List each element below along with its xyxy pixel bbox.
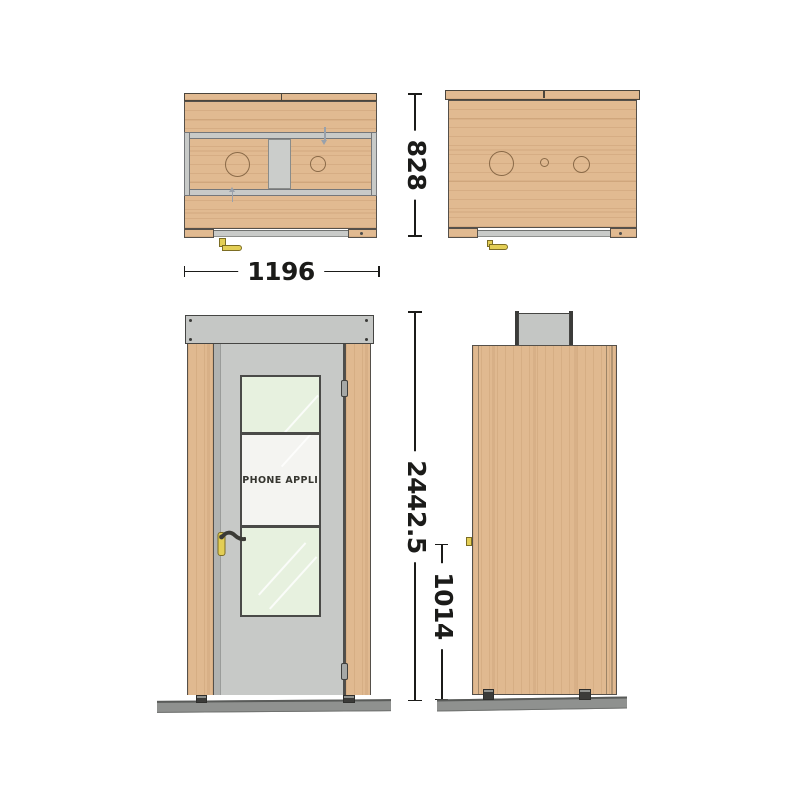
crank-bar bbox=[222, 245, 242, 251]
roof-top-beam bbox=[445, 90, 640, 100]
roof-strip-wood-right bbox=[610, 228, 637, 238]
side-panel-seam bbox=[478, 346, 479, 694]
dim-width-tick-left bbox=[184, 266, 186, 277]
ventilation-hole-small bbox=[310, 156, 326, 172]
roof-strip-latch-dot bbox=[619, 232, 622, 235]
roof-hole-medium bbox=[573, 156, 590, 173]
ventilation-hole-large bbox=[225, 152, 250, 177]
screw-icon bbox=[189, 319, 192, 322]
screw-icon bbox=[365, 319, 368, 322]
technical-drawing-canvas: 828 1196 bbox=[0, 0, 800, 800]
roof-crank-handle bbox=[487, 240, 511, 250]
vent-cap-box bbox=[518, 313, 570, 347]
dim-width-label: 1196 bbox=[238, 258, 324, 284]
roof-hole-tiny bbox=[540, 158, 549, 167]
glass-reflection bbox=[281, 435, 312, 467]
frame-rail-bottom bbox=[184, 189, 377, 196]
dim-height-tick-bottom bbox=[408, 700, 422, 702]
glass-reflection bbox=[258, 542, 306, 595]
frame-end-right bbox=[371, 132, 377, 196]
plan-frame-band bbox=[184, 132, 377, 196]
roof-cap-panel bbox=[185, 315, 374, 344]
hinge-top bbox=[341, 380, 349, 397]
door-brand-label: PHONE APPLI bbox=[242, 475, 318, 486]
screw-icon bbox=[365, 338, 368, 341]
strip-door-recess bbox=[214, 230, 348, 237]
dim-height-tick-top bbox=[408, 311, 422, 313]
frame-rail-top bbox=[184, 132, 377, 139]
dim-depth-label: 828 bbox=[402, 131, 428, 200]
strip-latch-dot bbox=[360, 232, 363, 235]
adjustable-foot bbox=[483, 689, 494, 700]
clip-pin-bottom bbox=[232, 191, 234, 202]
door-handle bbox=[217, 528, 246, 561]
dim-width-tick-right bbox=[378, 266, 380, 277]
adjustable-foot bbox=[579, 689, 592, 700]
handle-tip-side bbox=[466, 537, 472, 546]
roof-strip-recess bbox=[478, 230, 610, 237]
glass-reflection bbox=[269, 556, 317, 609]
roof-door-strip bbox=[445, 228, 640, 238]
adjustable-foot bbox=[196, 695, 208, 703]
roof-strip-wood-left bbox=[448, 228, 478, 238]
side-panel-seam bbox=[606, 346, 607, 694]
frame-end-left bbox=[184, 132, 190, 196]
side-elevation bbox=[472, 311, 620, 703]
wood-column-right bbox=[345, 344, 371, 695]
roof-hole-large bbox=[489, 151, 514, 176]
door-window: PHONE APPLI bbox=[240, 375, 321, 618]
clip-pin-top-arrow-icon bbox=[321, 140, 327, 145]
dim-depth-tick-top bbox=[408, 93, 422, 95]
wood-column-left bbox=[187, 344, 214, 695]
front-elevation: PHONE APPLI bbox=[185, 315, 375, 705]
roof-crank-bar bbox=[489, 244, 508, 250]
strip-wood-end-left bbox=[184, 229, 214, 239]
door-jamb-left bbox=[214, 344, 221, 695]
adjustable-foot bbox=[343, 695, 355, 703]
dim-handle-height-label: 1014 bbox=[429, 563, 455, 649]
plan-view-roof-side bbox=[445, 90, 640, 250]
window-pane-top bbox=[242, 377, 319, 433]
dim-depth-tick-bottom bbox=[408, 235, 422, 237]
plan-view-door-side bbox=[184, 93, 377, 258]
roof-beam-notch bbox=[543, 91, 545, 98]
window-pane-middle: PHONE APPLI bbox=[242, 435, 319, 525]
frame-center-block bbox=[268, 139, 291, 189]
window-pane-bottom bbox=[242, 528, 319, 615]
hinge-bottom bbox=[341, 663, 349, 680]
beam-joint-notch bbox=[281, 94, 283, 100]
side-panel-seam bbox=[611, 346, 613, 694]
plan-door-strip bbox=[184, 229, 377, 239]
door-handle-crank bbox=[219, 238, 243, 251]
screw-icon bbox=[189, 338, 192, 341]
glass-reflection bbox=[281, 394, 319, 432]
vent-post-right bbox=[569, 311, 573, 347]
plan-top-beam bbox=[184, 93, 377, 101]
dim-height-label: 2442.5 bbox=[402, 451, 428, 562]
side-body-panel bbox=[472, 345, 617, 695]
dim-handle-height-tick-top bbox=[435, 544, 448, 546]
clip-pin-top bbox=[324, 127, 326, 141]
